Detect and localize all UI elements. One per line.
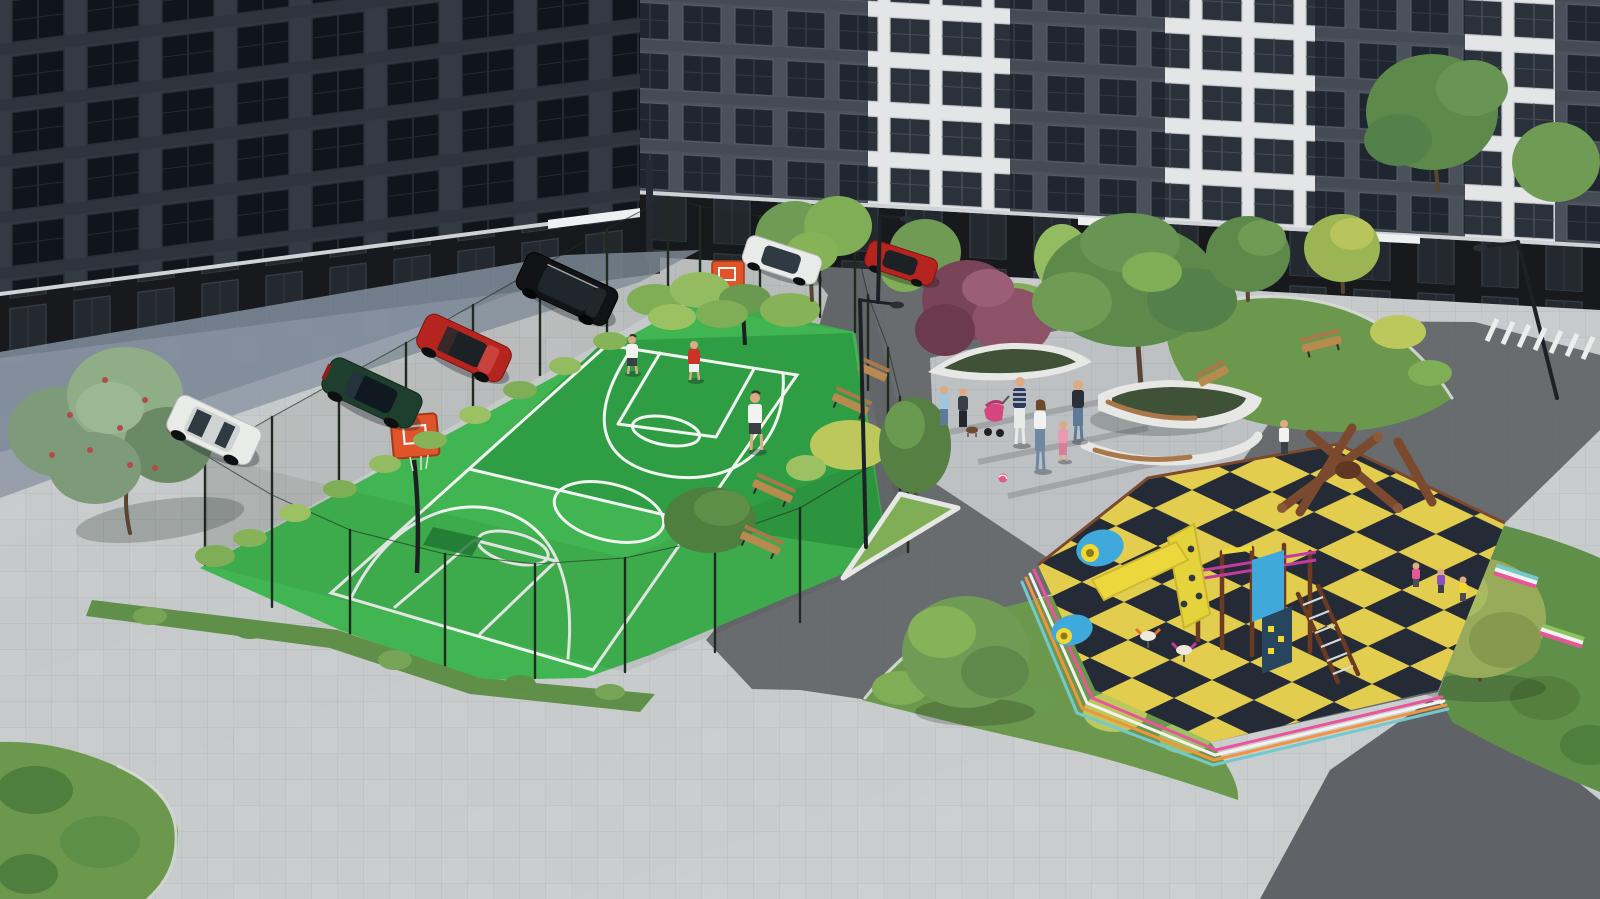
activity-panel — [1262, 606, 1292, 674]
render-viewport — [0, 0, 1600, 899]
child-1 — [1412, 563, 1420, 588]
tree-right-edge — [1512, 122, 1600, 202]
bush-dark-court-highlight — [694, 490, 750, 526]
person-gray — [958, 388, 968, 427]
child-3 — [1459, 577, 1467, 602]
courtyard-scene — [0, 0, 1600, 899]
child-2 — [1437, 569, 1445, 594]
right-facade-white-section-2 — [1165, 0, 1315, 232]
bush-green-topright — [1408, 360, 1452, 386]
bush-small-court — [786, 455, 826, 481]
bush-yellow-topright — [1370, 315, 1426, 349]
right-facade-white-section-1 — [868, 0, 1010, 215]
person-lightblue — [939, 386, 949, 425]
